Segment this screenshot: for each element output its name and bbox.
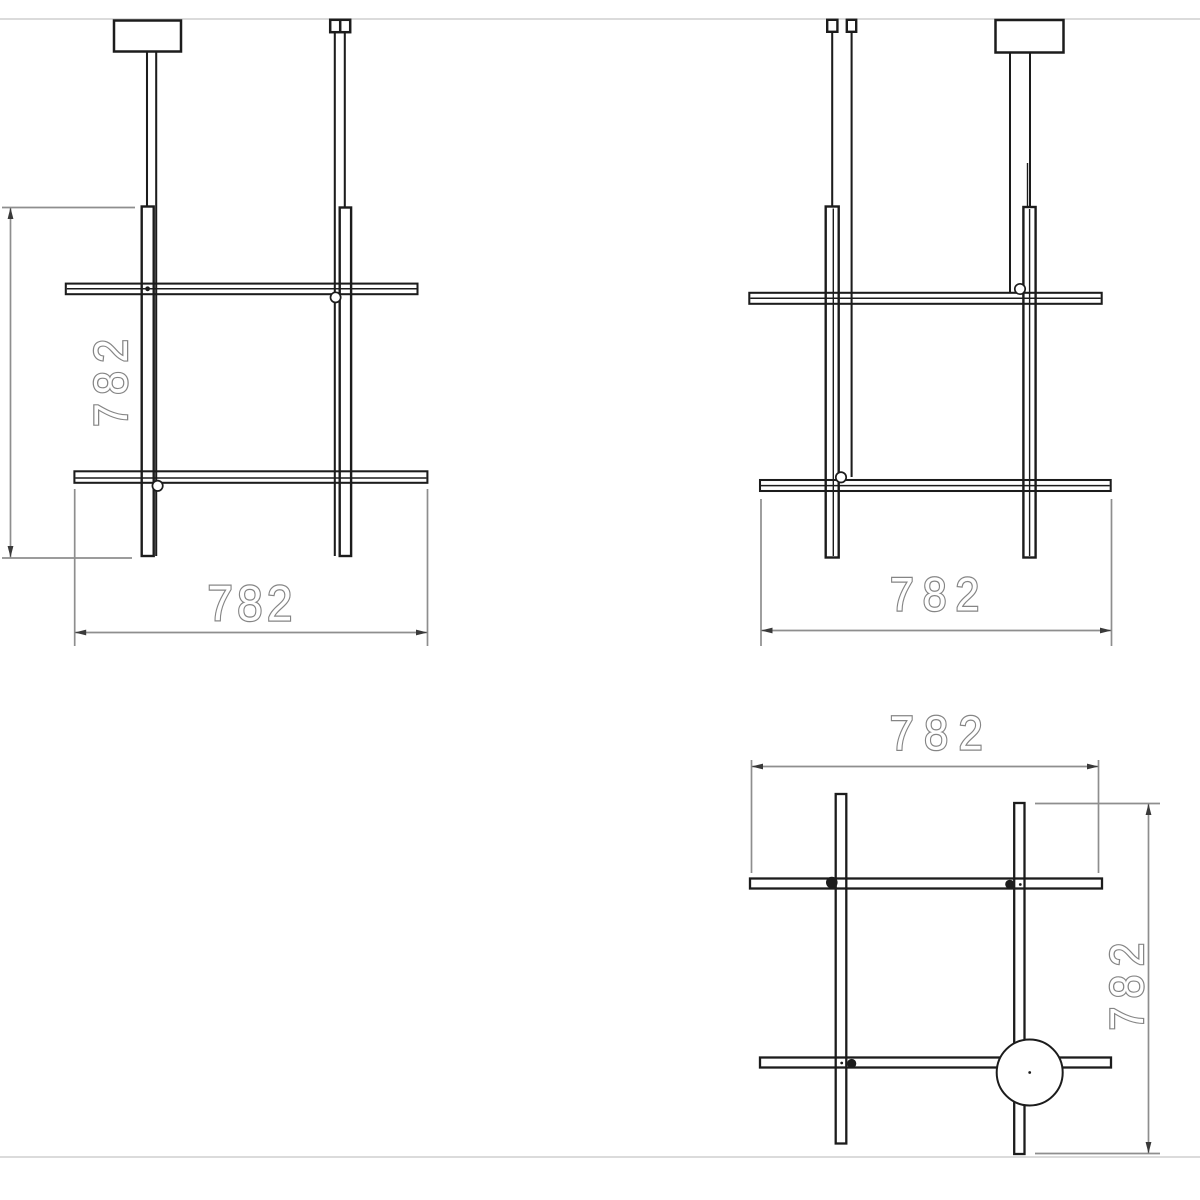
svg-text:782: 782 xyxy=(890,567,988,621)
svg-text:782: 782 xyxy=(86,331,138,427)
svg-text:782: 782 xyxy=(1102,934,1154,1030)
svg-text:782: 782 xyxy=(208,577,297,633)
svg-text:782: 782 xyxy=(890,706,993,760)
